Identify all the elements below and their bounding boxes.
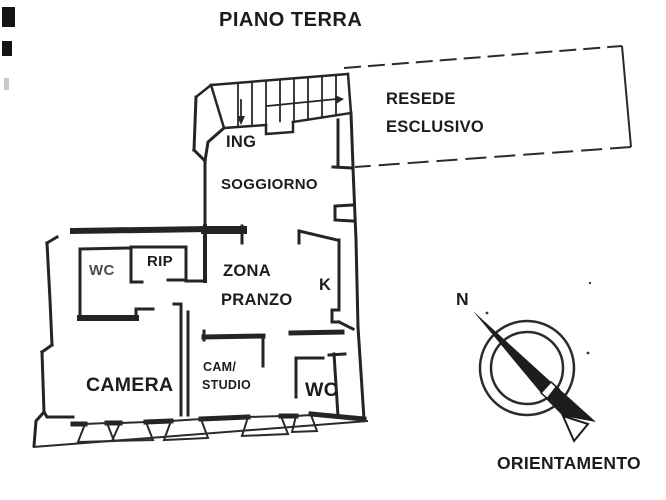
room-label-ing: ING — [226, 134, 256, 151]
room-label-camera: CAMERA — [86, 376, 173, 396]
compass-rose — [473, 282, 596, 441]
compass-north-label: N — [456, 291, 469, 309]
compass-caption: ORIENTAMENTO — [497, 455, 641, 473]
stair-direction-arrow-icon — [267, 95, 344, 106]
room-label-wc-lower: WC — [305, 381, 338, 401]
room-label-pranzo: PRANZO — [221, 292, 292, 309]
room-label-zona: ZONA — [223, 263, 271, 280]
room-label-cam: CAM/ — [203, 361, 236, 374]
page-title: PIANO TERRA — [219, 10, 362, 30]
floor-plan-drawing — [0, 0, 666, 500]
room-label-rip: RIP — [147, 254, 173, 269]
scan-artifact-marks — [2, 7, 15, 90]
floor-plan-page: PIANO TERRA RESEDE ESCLUSIVO ING SOGGIOR… — [0, 0, 666, 500]
outdoor-label-line2: ESCLUSIVO — [386, 119, 484, 136]
window-openings — [33, 415, 368, 447]
staircase — [196, 74, 351, 134]
outdoor-label-line1: RESEDE — [386, 91, 456, 108]
room-label-studio: STUDIO — [202, 379, 251, 392]
room-label-soggiorno: SOGGIORNO — [221, 177, 318, 192]
room-label-wc-upper: WC — [89, 263, 115, 278]
room-label-kitchen: K — [319, 277, 331, 294]
